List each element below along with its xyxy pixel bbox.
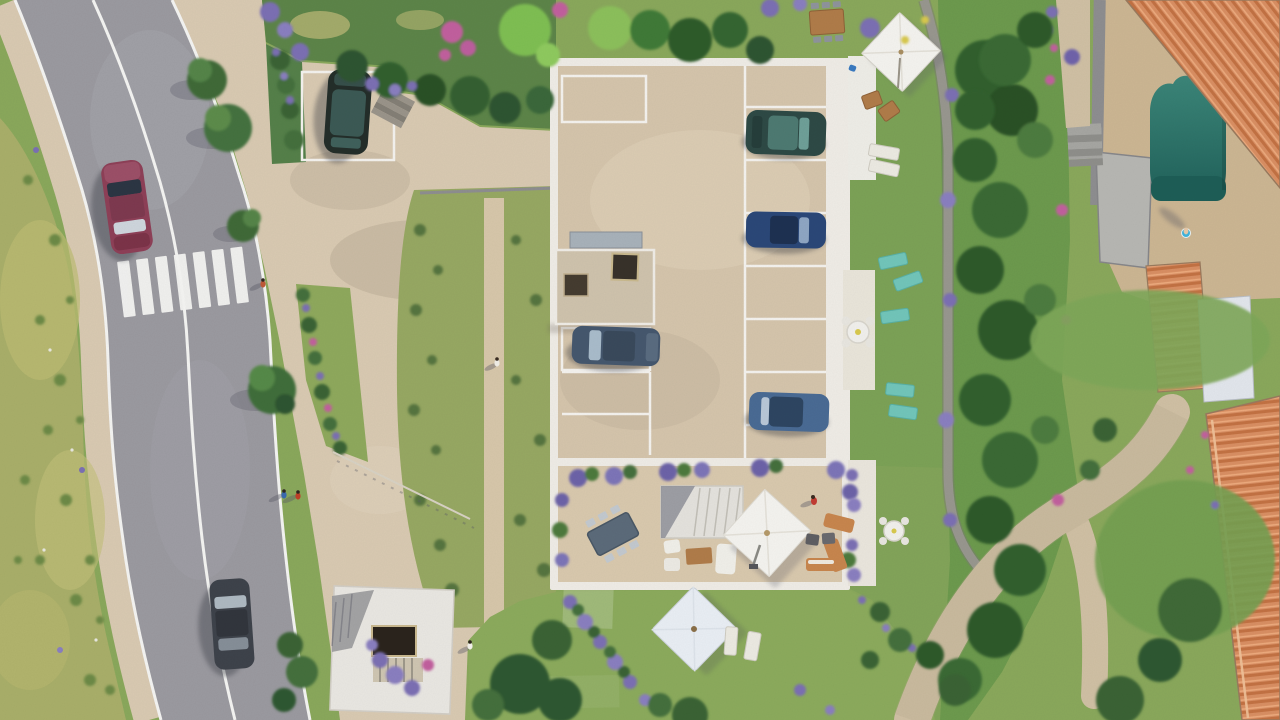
aerial-view-svg: Aerial top-down 3D architectural renderi… — [0, 0, 1280, 720]
film-grain-overlay — [0, 0, 1280, 720]
site-plan-render: Aerial top-down 3D architectural renderi… — [0, 0, 1280, 720]
